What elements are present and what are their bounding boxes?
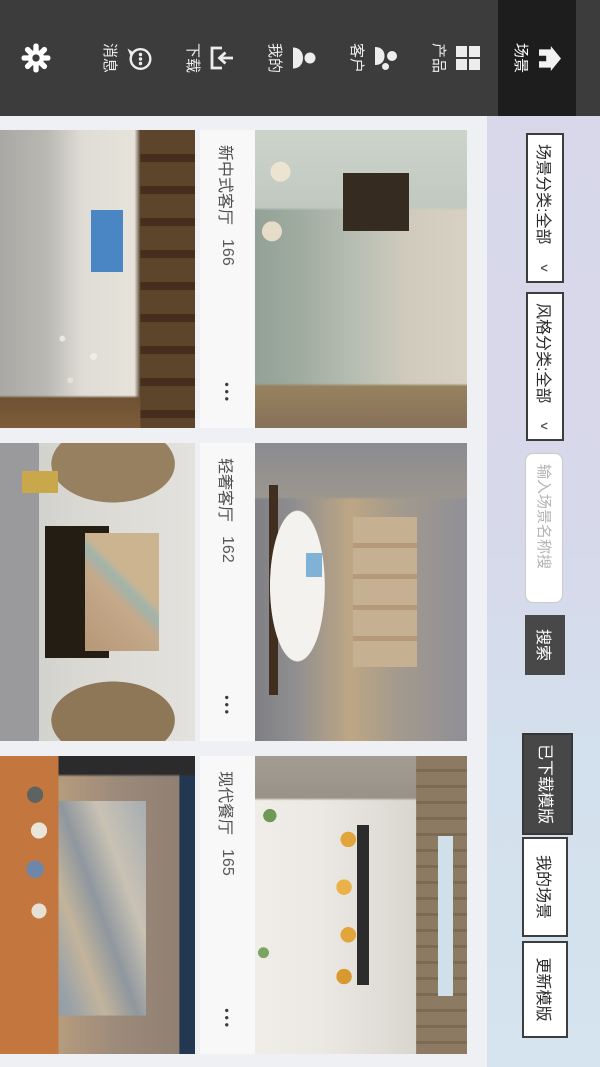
scene-card-titlebar: 新中式客厅 166 •••	[200, 130, 255, 428]
scene-category-label: 场景分类:全部	[533, 144, 557, 244]
more-menu-icon[interactable]: •••	[221, 382, 235, 404]
message-icon	[127, 45, 154, 72]
scene-card-new-chinese-living-room[interactable]: 新中式客厅 166 •••	[200, 130, 467, 428]
scene-card-partial[interactable]	[0, 130, 195, 428]
tab-my-scenes[interactable]: 我的场景	[522, 837, 568, 937]
scene-card-partial[interactable]	[0, 756, 195, 1054]
sidebar-item-label: 场景	[511, 43, 532, 73]
chevron-down-icon: ∨	[539, 262, 552, 273]
scene-category-dropdown[interactable]: 场景分类:全部 ∨	[526, 133, 564, 283]
scene-thumbnail[interactable]	[255, 130, 467, 428]
more-menu-icon[interactable]: •••	[221, 1008, 235, 1030]
scene-card-light-luxury-living-room[interactable]: 轻奢客厅 162 •••	[200, 443, 467, 741]
more-menu-icon[interactable]: •••	[221, 695, 235, 717]
download-icon	[209, 45, 235, 71]
chevron-down-icon: ∨	[539, 420, 552, 431]
sidebar-item-label: 下载	[183, 43, 204, 73]
sidebar-item-mine[interactable]: 我的	[252, 0, 330, 116]
search-button[interactable]: 搜索	[525, 615, 565, 675]
tab-downloaded-templates[interactable]: 已下载模版	[522, 733, 573, 835]
scene-card-titlebar: 轻奢客厅 162 •••	[200, 443, 255, 741]
sidebar-item-label: 我的	[265, 43, 286, 73]
rotated-app-stage: 场景 产品 客户 我的 下载	[0, 0, 600, 1067]
scene-card-partial[interactable]	[0, 443, 195, 741]
sidebar-item-label: 产品	[429, 43, 450, 73]
sidebar-item-label: 客户	[347, 43, 368, 73]
sidebar-item-messages[interactable]: 消息	[88, 0, 166, 116]
profile-icon	[291, 45, 317, 71]
tab-update-templates[interactable]: 更新模版	[522, 941, 568, 1038]
sidebar-spacer	[50, 0, 84, 116]
scene-count: 162	[219, 536, 237, 563]
gear-icon	[17, 43, 52, 73]
sidebar-item-download[interactable]: 下载	[170, 0, 248, 116]
sidebar-item-label: 消息	[101, 43, 122, 73]
scene-grid: 新中式客厅 166 ••• 轻奢客厅 162 •••	[0, 116, 487, 1067]
scene-title: 新中式客厅	[216, 145, 240, 225]
settings-button[interactable]	[18, 43, 50, 73]
scene-thumbnail[interactable]	[0, 443, 195, 741]
scene-count: 165	[219, 849, 237, 876]
grid-column: 轻奢客厅 162 •••	[0, 443, 487, 741]
scene-thumbnail[interactable]	[255, 756, 467, 1054]
customer-icon	[373, 45, 399, 71]
scene-card-titlebar: 现代餐厅 165 •••	[200, 756, 255, 1054]
scene-title: 轻奢客厅	[216, 458, 240, 522]
sidebar-item-scene[interactable]: 场景	[498, 0, 576, 116]
scene-search-input[interactable]	[525, 453, 563, 603]
scene-card-modern-dining-room[interactable]: 现代餐厅 165 •••	[200, 756, 467, 1054]
sidebar-item-product[interactable]: 产品	[416, 0, 494, 116]
scene-thumbnail[interactable]	[0, 130, 195, 428]
grid-column: 现代餐厅 165 •••	[0, 756, 487, 1054]
style-category-dropdown[interactable]: 风格分类:全部 ∨	[526, 292, 564, 441]
sidebar-nav: 场景 产品 客户 我的 下载	[0, 0, 600, 116]
grid-icon	[455, 45, 481, 71]
scene-count: 166	[219, 239, 237, 266]
scene-thumbnail[interactable]	[0, 756, 195, 1054]
grid-column: 新中式客厅 166 •••	[0, 130, 487, 428]
scene-thumbnail[interactable]	[255, 443, 467, 741]
scene-title: 现代餐厅	[216, 771, 240, 835]
sidebar-item-customer[interactable]: 客户	[334, 0, 412, 116]
filter-bar: 场景分类:全部 ∨ 风格分类:全部 ∨ 搜索 已下载模版 我的场景 更新模版	[487, 116, 600, 1067]
home-icon	[537, 45, 563, 72]
style-category-label: 风格分类:全部	[533, 303, 557, 403]
